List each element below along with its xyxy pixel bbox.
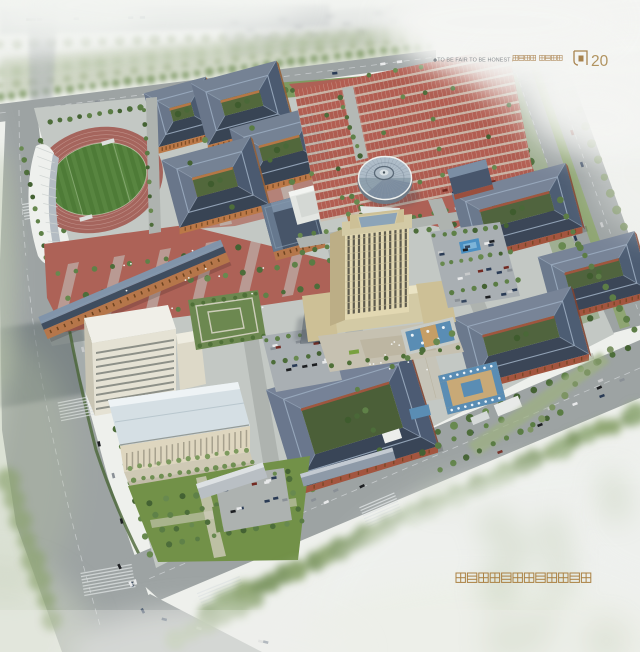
- svg-text:◆TO BE FAIR TO BE HONEST /: ◆TO BE FAIR TO BE HONEST /: [433, 58, 514, 64]
- svg-text:20: 20: [591, 53, 609, 70]
